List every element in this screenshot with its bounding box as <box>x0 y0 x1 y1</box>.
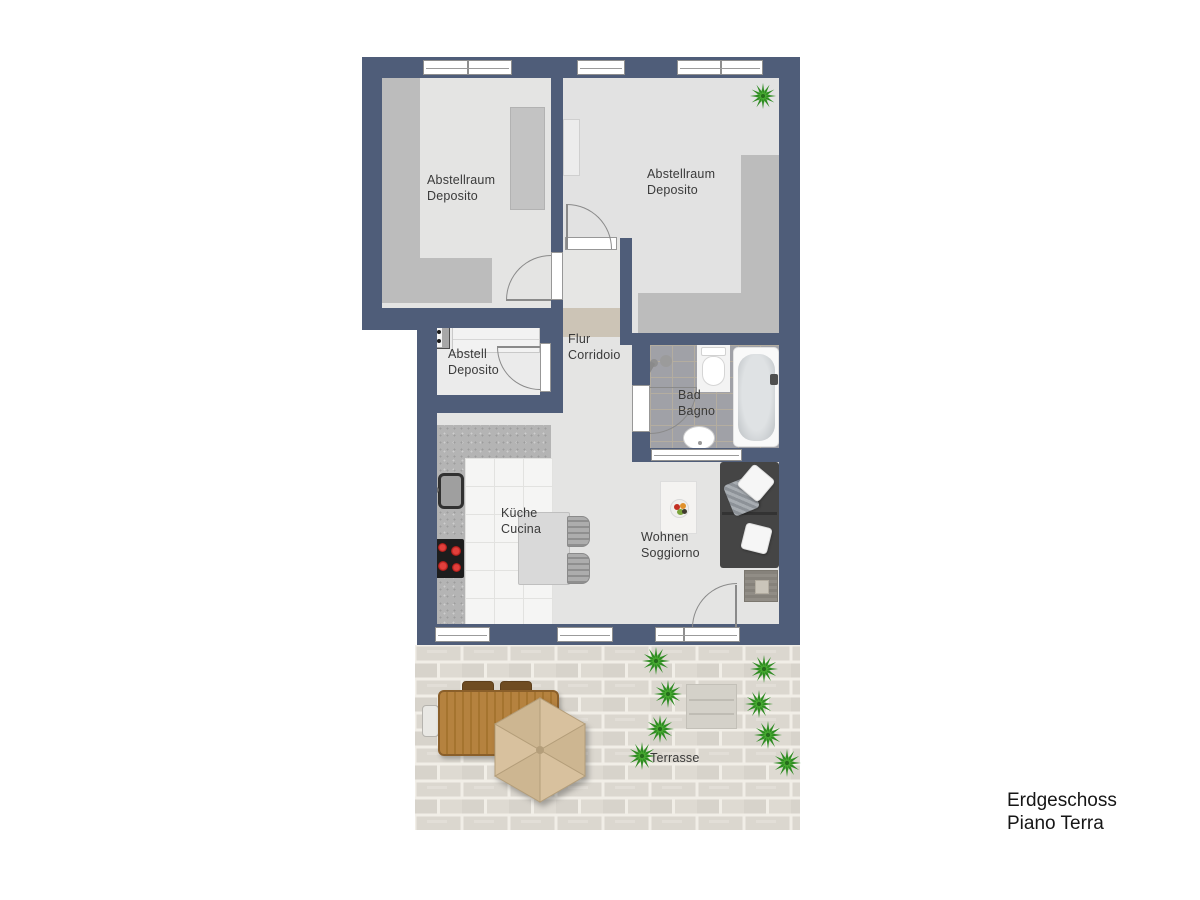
room-label-line: Flur <box>568 331 621 347</box>
burner-icon <box>438 561 448 571</box>
window <box>435 627 490 642</box>
plant-icon <box>645 714 675 744</box>
plant-icon <box>753 720 783 750</box>
room-label-line: Abstellraum <box>427 172 495 188</box>
wall-left-upper <box>362 57 382 330</box>
floor-title-line: Piano Terra <box>1007 812 1117 835</box>
fruit-icon <box>682 509 687 514</box>
toilet-icon <box>701 347 726 356</box>
plant-icon <box>744 689 774 719</box>
window-terrace-door <box>655 627 740 642</box>
wall-between-storage-rooms <box>551 57 563 252</box>
room-label-line: Deposito <box>448 362 499 378</box>
room-label-living: Wohnen Soggiorno <box>641 529 700 561</box>
window-post <box>683 628 685 641</box>
room-label-bathroom: Bad Bagno <box>678 387 715 419</box>
window-post <box>720 61 722 74</box>
window <box>577 60 625 75</box>
plant-icon <box>749 654 779 684</box>
parasol-icon <box>478 688 602 812</box>
door-leaf <box>566 204 568 249</box>
room-label-line: Corridoio <box>568 347 621 363</box>
room-label-storage-left: Abstellraum Deposito <box>427 172 495 204</box>
room-label-kitchen: Küche Cucina <box>501 505 541 537</box>
room-label-line: Küche <box>501 505 541 521</box>
wall-storage-right-bottom <box>620 333 779 345</box>
floor-title: Erdgeschoss Piano Terra <box>1007 789 1117 835</box>
room-label-line: Cucina <box>501 521 541 537</box>
coffee-table <box>660 481 697 534</box>
wall-hallway-right <box>620 238 632 345</box>
bathtub-icon <box>733 347 779 447</box>
bathtub-basin <box>738 354 775 441</box>
closet-shade-right-bottom <box>638 293 779 333</box>
wardrobe <box>510 107 545 210</box>
door-frame <box>632 385 650 432</box>
shower-head-icon <box>660 355 672 367</box>
floor-plan: Abstellraum Deposito Abstellraum Deposit… <box>0 0 1200 900</box>
window-post <box>467 61 469 74</box>
room-label-line: Deposito <box>647 182 715 198</box>
washer-knob-icon <box>437 339 441 343</box>
window <box>677 60 763 75</box>
fruit-bowl-icon <box>670 499 689 518</box>
wall-right <box>779 57 800 645</box>
room-label-line: Soggiorno <box>641 545 700 561</box>
bathroom-interior-window <box>651 449 742 461</box>
burner-icon <box>438 543 447 552</box>
kitchen-sink-icon <box>438 473 464 509</box>
cabinet <box>563 119 580 176</box>
toilet-bowl-icon <box>702 356 725 386</box>
burner-icon <box>451 546 461 556</box>
plant-icon <box>772 748 802 778</box>
bench-slat-line <box>689 699 734 701</box>
room-label-line: Wohnen <box>641 529 700 545</box>
window <box>557 627 613 642</box>
terrace <box>415 645 800 830</box>
side-table-top <box>755 580 769 594</box>
plant-icon <box>749 82 777 110</box>
room-label-terrace: Terrasse <box>650 750 700 766</box>
burner-icon <box>452 563 461 572</box>
door-frame <box>551 252 563 300</box>
room-label-line: Bagno <box>678 403 715 419</box>
room-label-hallway: Flur Corridoio <box>568 331 621 363</box>
washer-knob-icon <box>437 330 441 334</box>
room-label-line: Deposito <box>427 188 495 204</box>
floor-title-line: Erdgeschoss <box>1007 789 1117 812</box>
page-background: Abstellraum Deposito Abstellraum Deposit… <box>0 0 1200 900</box>
tub-faucet-icon <box>770 374 778 385</box>
room-label-storage-right: Abstellraum Deposito <box>647 166 715 198</box>
wall-left-lower <box>417 330 437 645</box>
door-leaf <box>497 346 540 348</box>
room-label-storage-small: Abstell Deposito <box>448 346 499 378</box>
room-label-line: Bad <box>678 387 715 403</box>
sofa-cushion-divider <box>722 512 777 515</box>
room-label-line: Terrasse <box>650 750 700 766</box>
plant-icon <box>641 646 671 676</box>
closet-shade-left-bottom <box>382 258 492 303</box>
room-label-line: Abstellraum <box>647 166 715 182</box>
bench-slat-line <box>689 713 734 715</box>
side-table <box>744 570 778 602</box>
door-frame <box>540 343 551 392</box>
wall-small-storage-bottom <box>417 395 563 413</box>
window <box>423 60 512 75</box>
patio-chair <box>422 705 439 737</box>
stove-icon <box>435 539 464 578</box>
bath-sink-icon <box>683 426 715 450</box>
chair-icon <box>567 553 590 584</box>
sink-drain-icon <box>698 441 702 445</box>
storage-counter-line <box>453 339 539 340</box>
garden-bench <box>686 684 737 729</box>
wall-storage-left-bottom <box>382 308 551 328</box>
door-leaf <box>735 585 737 627</box>
chair-icon <box>567 516 590 547</box>
room-label-line: Abstell <box>448 346 499 362</box>
kitchen-counter-top <box>437 425 551 458</box>
plant-icon <box>653 679 683 709</box>
door-leaf <box>506 299 551 301</box>
